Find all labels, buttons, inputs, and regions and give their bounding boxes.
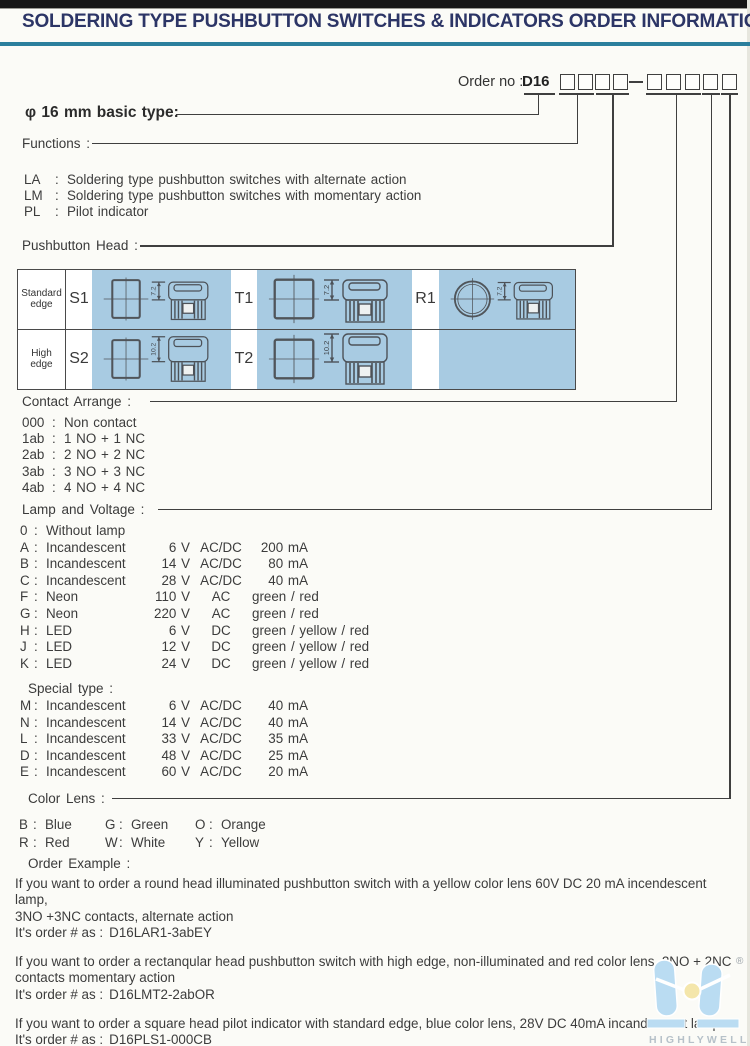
lamp-voltage: 14 V — [150, 556, 190, 573]
order-code-box — [578, 74, 593, 90]
function-desc: Pilot indicator — [67, 204, 148, 219]
contact-code: 4ab — [22, 480, 52, 496]
lamp-code: A — [20, 540, 34, 557]
head-code-s1: S1 — [66, 270, 92, 330]
lamp-item: F : Neon 110 V AC green / red — [20, 589, 420, 606]
lamp-name: Neon — [46, 606, 150, 623]
order-code-box — [703, 74, 718, 90]
function-item: LM:Soldering type pushbutton switches wi… — [24, 188, 421, 204]
order-code-box — [613, 74, 628, 90]
rect-front-view-icon — [102, 271, 150, 327]
special-current: 35 mA — [252, 731, 308, 748]
colon: : — [34, 589, 46, 606]
connector-lens-h — [112, 798, 730, 800]
lamp-code: C — [20, 573, 34, 590]
colon: : — [34, 731, 46, 748]
special-rating: 20 mA — [252, 764, 420, 781]
underline-prefix — [524, 93, 555, 95]
lamp-rating: green / red — [252, 589, 420, 606]
highlywell-logo-icon — [643, 952, 743, 1034]
pushbutton-head-label: Pushbutton Head : — [22, 238, 138, 253]
lamp-name: Incandescent — [46, 573, 150, 590]
order-no-label: Order no : — [458, 74, 523, 90]
lens-code: G — [105, 816, 119, 834]
example-description: If you want to order a square head pilot… — [15, 1016, 741, 1032]
dim-label: 10.2 — [151, 343, 158, 356]
lamp-system: DC — [190, 623, 252, 640]
function-code: LA — [24, 172, 55, 188]
example-order-label: It's order # as : — [15, 925, 103, 940]
colon: : — [34, 764, 46, 781]
special-name: Incandescent — [46, 748, 150, 765]
lamp-name: Without lamp — [46, 523, 150, 540]
lens-code: B — [19, 816, 33, 834]
contact-code: 3ab — [22, 464, 52, 480]
lamp-voltage: 110 V — [150, 589, 190, 606]
special-voltage: 60 V — [150, 764, 190, 781]
connector-functions-h — [92, 143, 578, 145]
special-code: L — [20, 731, 34, 748]
order-code-box — [666, 74, 681, 90]
special-item: L : Incandescent 33 V AC/DC 35 mA — [20, 731, 420, 748]
example-order-line: It's order # as :D16LMT2-2abOR — [15, 987, 741, 1003]
edge-label: Standard edge — [18, 270, 66, 330]
special-current: 20 mA — [252, 764, 308, 781]
page-title: SOLDERING TYPE PUSHBUTTON SWITCHES & IND… — [22, 11, 750, 33]
lamp-colors: green / red — [252, 589, 319, 606]
lamp-rating: 80 mA — [252, 556, 420, 573]
example-order-line: It's order # as :D16LAR1-3abEY — [15, 925, 741, 941]
color-lens-grid: B:Blue G:Green O:Orange R:Red W:White Y:… — [19, 816, 266, 852]
lamp-voltage: 12 V — [150, 639, 190, 656]
lamp-name: LED — [46, 639, 150, 656]
lamp-system: AC/DC — [190, 573, 252, 590]
lamp-code: G — [20, 606, 34, 623]
side-view-high-icon: 10.2 — [150, 330, 223, 388]
example-order-line: It's order # as :D16PLS1-000CB — [15, 1032, 741, 1046]
lamp-code: 0 — [20, 523, 34, 540]
connector-head-v — [612, 93, 614, 247]
contact-desc: 3 NO + 3 NC — [64, 464, 145, 479]
connector-lamp-v — [711, 93, 713, 510]
head-cell-t2: 10.2 — [257, 330, 412, 390]
special-code: N — [20, 715, 34, 732]
colon: : — [34, 606, 46, 623]
special-type-list: M : Incandescent 6 V AC/DC 40 mA N : Inc… — [20, 698, 420, 781]
lens-code: W — [105, 834, 119, 852]
order-example: If you want to order a square head pilot… — [15, 1016, 741, 1046]
special-system: AC/DC — [190, 731, 252, 748]
square-front-view-icon — [267, 331, 321, 387]
special-name: Incandescent — [46, 764, 150, 781]
colon: : — [55, 188, 67, 204]
lamp-rating: 200 mA — [252, 540, 420, 557]
lens-code: R — [19, 834, 33, 852]
lamp-name: Incandescent — [46, 540, 150, 557]
lamp-code: F — [20, 589, 34, 606]
special-system: AC/DC — [190, 764, 252, 781]
function-item: LA:Soldering type pushbutton switches wi… — [24, 172, 421, 188]
dim-label: 7.2 — [322, 285, 331, 295]
contact-desc: 1 NO + 1 NC — [64, 431, 145, 446]
lamp-voltage: 6 V — [150, 540, 190, 557]
colon: : — [34, 540, 46, 557]
lamp-current: 200 mA — [252, 540, 308, 557]
special-current: 25 mA — [252, 748, 308, 765]
top-edge-bar — [0, 0, 750, 9]
contact-item: 4ab:4 NO + 4 NC — [22, 480, 145, 496]
colon: : — [33, 834, 45, 852]
lamp-code: J — [20, 639, 34, 656]
functions-list: LA:Soldering type pushbutton switches wi… — [24, 172, 421, 221]
contact-arrange-list: 000:Non contact 1ab:1 NO + 1 NC 2ab:2 NO… — [22, 415, 145, 496]
order-code-dash — [629, 81, 643, 83]
square-front-view-icon — [267, 271, 321, 327]
colon: : — [34, 573, 46, 590]
header-rule — [0, 42, 750, 46]
order-code-box — [722, 74, 737, 90]
special-code: M — [20, 698, 34, 715]
lens-code: O — [195, 816, 209, 834]
contact-item: 1ab:1 NO + 1 NC — [22, 431, 145, 447]
lamp-item: K : LED 24 V DC green / yellow / red — [20, 656, 420, 673]
colon: : — [52, 464, 64, 480]
head-empty-blue-cell — [439, 330, 575, 390]
special-name: Incandescent — [46, 731, 150, 748]
lamp-name: LED — [46, 656, 150, 673]
special-item: M : Incandescent 6 V AC/DC 40 mA — [20, 698, 420, 715]
contact-desc: 2 NO + 2 NC — [64, 447, 145, 462]
contact-desc: Non contact — [64, 415, 136, 430]
example-order-number: D16LAR1-3abEY — [109, 925, 212, 940]
example-description: If you want to order a round head illumi… — [15, 876, 741, 925]
colon: : — [34, 748, 46, 765]
basic-type-label: φ 16 mm basic type: — [25, 104, 179, 122]
lens-name: Orange — [221, 817, 266, 832]
order-example: If you want to order a rectanqular head … — [15, 954, 741, 1003]
contact-item: 2ab:2 NO + 2 NC — [22, 447, 145, 463]
lamp-system: DC — [190, 639, 252, 656]
lamp-name: Incandescent — [46, 556, 150, 573]
lens-code: Y — [195, 834, 209, 852]
order-no-prefix: D16 — [522, 73, 550, 90]
contact-code: 1ab — [22, 431, 52, 447]
lamp-name: Neon — [46, 589, 150, 606]
lamp-voltage: 28 V — [150, 573, 190, 590]
colon: : — [33, 816, 45, 834]
colon: : — [52, 431, 64, 447]
registered-trademark-icon: ® — [736, 956, 743, 967]
lamp-item: 0 : Without lamp — [20, 523, 420, 540]
function-code: LM — [24, 188, 55, 204]
connector-lens-v — [729, 93, 731, 799]
lamp-rating: green / yellow / red — [252, 656, 420, 673]
special-code: E — [20, 764, 34, 781]
rect-front-view-icon — [102, 331, 150, 387]
example-order-label: It's order # as : — [15, 1032, 103, 1046]
lamp-voltage-list: 0 : Without lamp A : Incandescent 6 V AC… — [20, 523, 420, 672]
lamp-colors: green / yellow / red — [252, 623, 369, 640]
pushbutton-head-table: Standard edge S1 7.2 T1 — [17, 269, 576, 390]
colon: : — [52, 415, 64, 431]
special-current: 40 mA — [252, 698, 308, 715]
lamp-colors: green / yellow / red — [252, 639, 369, 656]
lamp-current: 40 mA — [252, 573, 308, 590]
special-name: Incandescent — [46, 698, 150, 715]
colon: : — [119, 816, 131, 834]
head-cell-t1: 7.2 — [257, 270, 412, 330]
lamp-system: DC — [190, 656, 252, 673]
lamp-system: AC — [190, 606, 252, 623]
colon: : — [34, 715, 46, 732]
head-code-t2: T2 — [231, 330, 257, 390]
color-lens-item: W:White — [105, 834, 195, 852]
contact-code: 000 — [22, 415, 52, 431]
special-name: Incandescent — [46, 715, 150, 732]
contact-code: 2ab — [22, 447, 52, 463]
colon: : — [119, 834, 131, 852]
special-voltage: 6 V — [150, 698, 190, 715]
lamp-rating: green / red — [252, 606, 420, 623]
function-desc: Soldering type pushbutton switches with … — [67, 188, 421, 203]
color-lens-label: Color Lens : — [28, 791, 105, 806]
special-item: N : Incandescent 14 V AC/DC 40 mA — [20, 715, 420, 732]
special-system: AC/DC — [190, 698, 252, 715]
lamp-system: AC — [190, 589, 252, 606]
lamp-rating: green / yellow / red — [252, 639, 420, 656]
lamp-rating — [252, 523, 420, 540]
special-rating: 40 mA — [252, 698, 420, 715]
side-view-standard-icon: 7.2 — [496, 271, 567, 327]
head-cell-r1: 7.2 — [439, 270, 575, 330]
colon: : — [34, 623, 46, 640]
order-code-box — [685, 74, 700, 90]
underline-contact — [646, 93, 701, 95]
function-desc: Soldering type pushbutton switches with … — [67, 172, 406, 187]
special-current: 40 mA — [252, 715, 308, 732]
example-order-number: D16LMT2-2abOR — [109, 987, 215, 1002]
lamp-voltage — [150, 523, 190, 540]
lamp-item: A : Incandescent 6 V AC/DC 200 mA — [20, 540, 420, 557]
lens-name: Green — [131, 817, 168, 832]
head-empty-code-cell — [412, 330, 439, 390]
head-code-s2: S2 — [66, 330, 92, 390]
order-examples: If you want to order a round head illumi… — [15, 876, 741, 1046]
lamp-code: H — [20, 623, 34, 640]
lamp-item: J : LED 12 V DC green / yellow / red — [20, 639, 420, 656]
lamp-system — [190, 523, 252, 540]
head-code-t1: T1 — [231, 270, 257, 330]
colon: : — [209, 834, 221, 852]
lamp-colors: green / yellow / red — [252, 656, 369, 673]
example-description: If you want to order a rectanqular head … — [15, 954, 741, 987]
order-code-box — [595, 74, 610, 90]
lamp-voltage: 24 V — [150, 656, 190, 673]
lamp-colors: green / red — [252, 606, 319, 623]
colon: : — [52, 447, 64, 463]
function-item: PL:Pilot indicator — [24, 204, 421, 220]
lamp-voltage: 6 V — [150, 623, 190, 640]
contact-arrange-label: Contact Arrange : — [22, 394, 131, 409]
circle-front-view-icon — [449, 271, 496, 327]
connector-contact-h — [150, 401, 677, 403]
lens-name: Red — [45, 835, 70, 850]
special-type-label: Special type : — [28, 681, 113, 696]
special-voltage: 33 V — [150, 731, 190, 748]
function-code: PL — [24, 204, 55, 220]
lamp-current: 80 mA — [252, 556, 308, 573]
lamp-code: B — [20, 556, 34, 573]
catalog-page: SOLDERING TYPE PUSHBUTTON SWITCHES & IND… — [0, 0, 750, 1046]
lamp-item: G : Neon 220 V AC green / red — [20, 606, 420, 623]
colon: : — [55, 204, 67, 220]
lamp-item: C : Incandescent 28 V AC/DC 40 mA — [20, 573, 420, 590]
lamp-system: AC/DC — [190, 556, 252, 573]
order-code-box — [647, 74, 662, 90]
example-order-number: D16PLS1-000CB — [109, 1032, 212, 1046]
lamp-rating: 40 mA — [252, 573, 420, 590]
colon: : — [34, 523, 46, 540]
order-example: If you want to order a round head illumi… — [15, 876, 741, 941]
color-lens-item: R:Red — [19, 834, 105, 852]
side-view-high-icon: 10.2 — [322, 330, 404, 388]
lamp-code: K — [20, 656, 34, 673]
functions-label: Functions : — [22, 136, 90, 151]
lens-name: White — [131, 835, 165, 850]
special-item: D : Incandescent 48 V AC/DC 25 mA — [20, 748, 420, 765]
example-order-label: It's order # as : — [15, 987, 103, 1002]
colon: : — [34, 556, 46, 573]
lamp-voltage: 220 V — [150, 606, 190, 623]
head-cell-s1: 7.2 — [92, 270, 231, 330]
order-code-box — [560, 74, 575, 90]
colon: : — [34, 639, 46, 656]
lamp-voltage-label: Lamp and Voltage : — [22, 502, 144, 517]
colon: : — [34, 656, 46, 673]
order-example-label: Order Example : — [28, 856, 130, 871]
head-code-r1: R1 — [412, 270, 439, 330]
head-cell-s2: 10.2 — [92, 330, 231, 390]
special-voltage: 48 V — [150, 748, 190, 765]
connector-basic-type-h — [176, 114, 539, 116]
contact-item: 3ab:3 NO + 3 NC — [22, 464, 145, 480]
lamp-name: LED — [46, 623, 150, 640]
connector-contact-v — [676, 93, 678, 402]
colon: : — [55, 172, 67, 188]
dim-label: 7.2 — [496, 287, 503, 296]
edge-label: High edge — [18, 330, 66, 390]
special-system: AC/DC — [190, 748, 252, 765]
color-lens-item: G:Green — [105, 816, 195, 834]
contact-desc: 4 NO + 4 NC — [64, 480, 145, 495]
color-lens-item: O:Orange — [195, 816, 266, 834]
connector-head-h — [140, 245, 614, 247]
lamp-rating: green / yellow / red — [252, 623, 420, 640]
dim-label: 7.2 — [151, 286, 158, 296]
connector-lamp-h — [158, 509, 712, 511]
special-rating: 35 mA — [252, 731, 420, 748]
color-lens-item: Y:Yellow — [195, 834, 266, 852]
side-view-standard-icon: 7.2 — [150, 271, 223, 327]
highlywell-logo-text: HIGHLYWELL — [649, 1034, 749, 1046]
colon: : — [52, 480, 64, 496]
lamp-item: H : LED 6 V DC green / yellow / red — [20, 623, 420, 640]
side-view-standard-icon: 7.2 — [322, 271, 404, 327]
lamp-system: AC/DC — [190, 540, 252, 557]
connector-functions-v — [577, 93, 579, 144]
lens-name: Blue — [45, 817, 72, 832]
special-code: D — [20, 748, 34, 765]
special-system: AC/DC — [190, 715, 252, 732]
lens-name: Yellow — [221, 835, 259, 850]
special-voltage: 14 V — [150, 715, 190, 732]
colon: : — [34, 698, 46, 715]
contact-item: 000:Non contact — [22, 415, 145, 431]
connector-basic-type-v — [538, 93, 540, 115]
special-item: E : Incandescent 60 V AC/DC 20 mA — [20, 764, 420, 781]
colon: : — [209, 816, 221, 834]
special-rating: 25 mA — [252, 748, 420, 765]
special-rating: 40 mA — [252, 715, 420, 732]
color-lens-item: B:Blue — [19, 816, 105, 834]
lamp-item: B : Incandescent 14 V AC/DC 80 mA — [20, 556, 420, 573]
dim-label: 10.2 — [322, 341, 331, 356]
